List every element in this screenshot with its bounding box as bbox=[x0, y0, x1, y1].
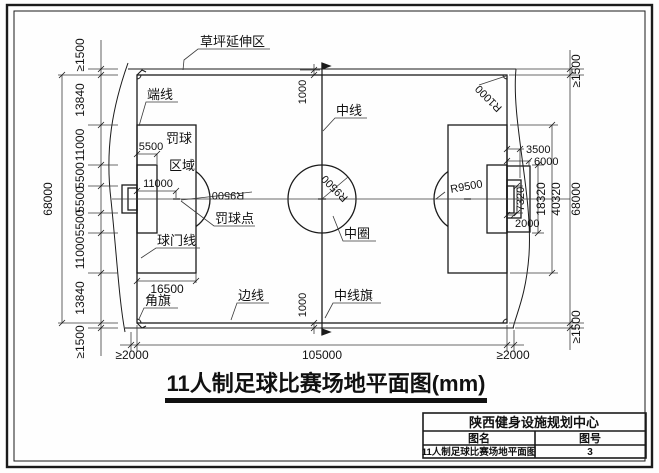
dim-goal-width: 7320 bbox=[515, 187, 527, 211]
drawing-name-label: 图名 bbox=[468, 431, 490, 445]
dim-flag-offset-top: 1000 bbox=[297, 80, 309, 104]
dim-goal-depth-2000: 2000 bbox=[515, 218, 539, 230]
label-penalty-spot: 罚球点 bbox=[215, 211, 254, 226]
dim-left-5500-b: 5500 bbox=[73, 186, 87, 213]
dim-field-width-right: 68000 bbox=[569, 182, 583, 216]
cad-sheet: ≥1500 13840 11000 5500 5500 5500 11000 1… bbox=[0, 0, 659, 473]
dim-left-gap-top: ≥1500 bbox=[73, 38, 87, 72]
dim-right-gap-top: ≥1500 bbox=[569, 54, 583, 88]
dim-behind-goal-3500: 3500 bbox=[526, 144, 550, 156]
dim-goal-area-width: 18320 bbox=[534, 182, 548, 216]
label-area-word: 区域 bbox=[169, 158, 195, 173]
dim-goal-area-depth: 5500 bbox=[139, 141, 163, 153]
dim-behind-goal-6000: 6000 bbox=[534, 156, 558, 168]
label-penalty-word: 罚球 bbox=[166, 131, 192, 146]
dim-left-5500-a: 5500 bbox=[73, 162, 87, 189]
title-underline bbox=[165, 398, 487, 403]
company-name: 陕西健身设施规划中心 bbox=[469, 415, 599, 430]
dim-penalty-mark: 11000 bbox=[143, 178, 173, 190]
dim-penalty-area-width: 40320 bbox=[549, 182, 563, 216]
leader-labels: 草坪延伸区 端线 罚球 区域 罚球点 球门线 角旗 边线 中线 中圈 中线旗 bbox=[139, 34, 381, 320]
dim-field-length: 105000 bbox=[302, 348, 342, 362]
dim-flag-offset-bottom: 1000 bbox=[297, 293, 309, 317]
label-center-line-flag: 中线旗 bbox=[334, 288, 373, 303]
label-end-line: 端线 bbox=[147, 87, 173, 102]
label-side-line: 边线 bbox=[238, 288, 264, 303]
label-corner-flag: 角旗 bbox=[145, 293, 171, 308]
dim-runoff-right: ≥2000 bbox=[496, 348, 530, 362]
penalty-arc-radius-left: R9500 bbox=[212, 189, 244, 201]
halfway-flag-bottom bbox=[322, 323, 330, 335]
label-center-line: 中线 bbox=[336, 103, 362, 118]
right-dimension-chains: 7320 18320 40320 ≥1500 68000 ≥1500 3500 … bbox=[504, 50, 584, 350]
sheet-border bbox=[7, 5, 652, 467]
dim-left-13840-bottom: 13840 bbox=[73, 281, 87, 315]
penalty-arc-radius-right: R9500 bbox=[449, 178, 483, 195]
label-goal-line: 球门线 bbox=[157, 233, 196, 248]
drawing-number-value: 3 bbox=[587, 447, 593, 458]
dim-left-5500-c: 5500 bbox=[73, 209, 87, 236]
dim-field-width-left: 68000 bbox=[41, 182, 55, 216]
dim-left-11000-top: 11000 bbox=[73, 128, 87, 161]
dim-runoff-left: ≥2000 bbox=[115, 348, 149, 362]
corner-arc-radius: R1000 bbox=[473, 82, 504, 113]
title-block: 陕西健身设施规划中心 图名 图号 11人制足球比赛场地平面图 3 bbox=[422, 413, 646, 458]
dim-left-gap-bottom: ≥1500 bbox=[73, 325, 87, 359]
drawing-number-label: 图号 bbox=[579, 432, 601, 445]
radius-annotations: R9500 R9500 R9500 R1000 bbox=[181, 76, 506, 204]
drawing-title: 11人制足球比赛场地平面图(mm) bbox=[165, 371, 487, 403]
drawing-name-value: 11人制足球比赛场地平面图 bbox=[422, 446, 537, 458]
dim-left-11000-bottom: 11000 bbox=[73, 236, 87, 269]
dim-left-13840-top: 13840 bbox=[73, 83, 87, 117]
label-center-circle: 中圈 bbox=[344, 226, 370, 241]
label-grass-zone: 草坪延伸区 bbox=[200, 34, 265, 49]
dim-right-gap-bottom: ≥1500 bbox=[569, 310, 583, 344]
page-title: 11人制足球比赛场地平面图(mm) bbox=[166, 371, 485, 396]
left-dimension-chain: ≥1500 13840 11000 5500 5500 5500 11000 1… bbox=[41, 38, 118, 359]
field-plan-drawing: ≥1500 13840 11000 5500 5500 5500 11000 1… bbox=[0, 0, 659, 473]
